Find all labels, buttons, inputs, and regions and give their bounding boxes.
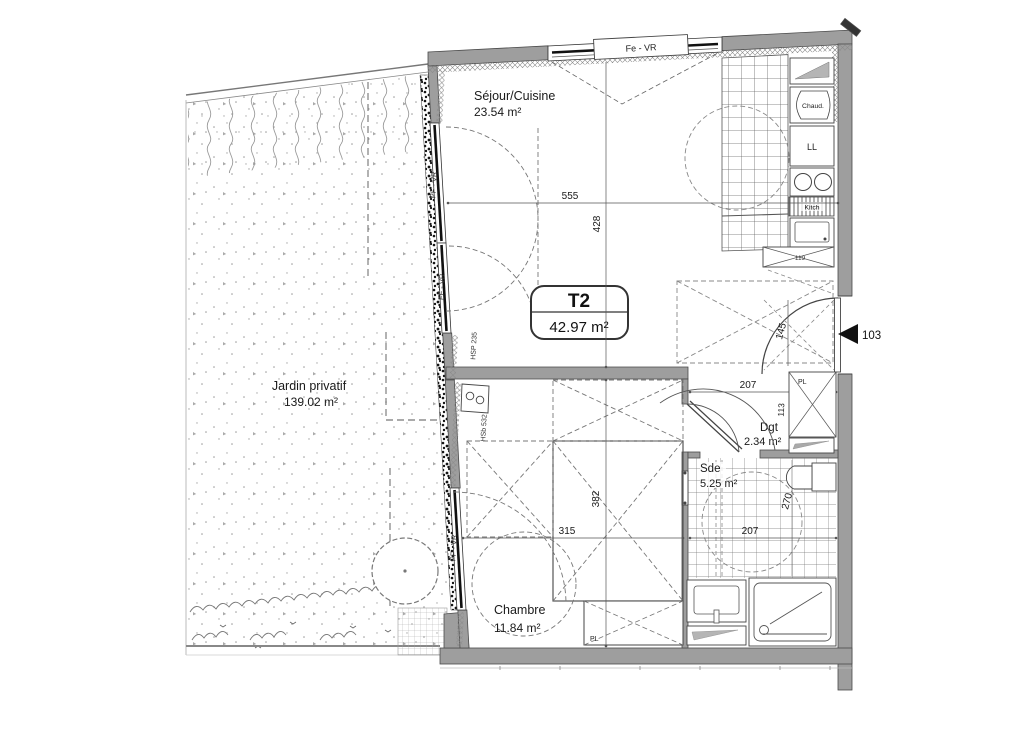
wall-right-upper [838, 44, 852, 296]
dim-428: 428 [592, 215, 603, 232]
floor-plan-drawing: Jardin privatif 139.02 m² [0, 0, 1024, 731]
wall-sde-top-left [688, 452, 700, 458]
dim-dot [605, 366, 608, 369]
garden: Jardin privatif 139.02 m² [186, 64, 460, 655]
sde-sink-tap [714, 610, 719, 623]
kitchen-floor-tiles [722, 55, 788, 251]
window-top-label-box: Fe - VR [594, 35, 689, 60]
dining-area-dashed [677, 281, 833, 363]
shower-drain [760, 626, 769, 635]
garden-area: 139.02 m² [284, 395, 338, 409]
dim-dot [605, 379, 608, 382]
entry-door-leaf [835, 298, 841, 372]
entry-clearance [764, 270, 834, 370]
dgt-area: 2.34 m² [744, 436, 782, 448]
dim-207-entry: 207 [740, 380, 757, 391]
wc-bowl [786, 466, 812, 489]
sejour-cuisine: Chaud. LL Kitch 119 Séjour/Cuisine 23.54… [446, 55, 834, 363]
wc-tank [812, 463, 836, 491]
dim-dot [689, 391, 692, 394]
dim-382: 382 [591, 490, 602, 507]
exterior-bottom-line [440, 666, 852, 670]
dim-dot [837, 202, 840, 205]
wall-sejour-chambre [446, 367, 688, 379]
chambre-radiator [461, 384, 489, 413]
dim-315: 315 [559, 526, 576, 537]
floor-plan-page: Jardin privatif 139.02 m² [0, 0, 1024, 731]
dgt-door-leaf2 [690, 401, 742, 449]
dim-555: 555 [562, 191, 579, 202]
note-hsb: HSb 532 [480, 414, 488, 442]
kitchen-sink-drain [824, 238, 827, 241]
unit-badge: T2 42.97 m² [531, 286, 628, 339]
chambre: PL Chambre 11.84 m² 315 382 [454, 379, 684, 648]
window-chambre-label: PF - VR [448, 534, 458, 562]
window-sejour-upper-label: PF - VR [428, 171, 438, 199]
dim-207-sde: 207 [742, 526, 759, 537]
entry: 103 145 [762, 270, 881, 374]
kitchen-label: Kitch [804, 205, 819, 212]
dim-dot [689, 537, 692, 540]
unit-number: 103 [862, 330, 881, 342]
radiator-valve [684, 472, 687, 475]
window-top-label: Fe - VR [625, 42, 657, 54]
entry-closet-label: PL [798, 379, 807, 386]
dim-145: 145 [774, 321, 789, 340]
note-hsp: HSP 235 [470, 332, 478, 360]
wall-bottom [440, 648, 852, 664]
tree-trunk [403, 569, 406, 572]
wall-right-lower [838, 374, 852, 690]
dim-113: 113 [776, 403, 787, 417]
sde-label: Sde [700, 463, 720, 475]
garden-label: Jardin privatif [272, 379, 347, 393]
unit-area: 42.97 m² [549, 319, 608, 336]
washing-machine-label: LL [807, 142, 817, 152]
hob-burner [795, 174, 812, 191]
unit-type: T2 [568, 291, 590, 312]
hob-burner [815, 174, 832, 191]
bed [553, 441, 683, 601]
chambre-area: 11.84 m² [494, 621, 540, 635]
radiator-valve [684, 502, 687, 505]
bedroom-closet-label: PL [590, 636, 599, 643]
window-sejour-lower-label: FF - VR [436, 273, 446, 300]
salle-eau: Sde 5.25 m² 207 270 [682, 458, 837, 646]
sde-area: 5.25 m² [700, 478, 738, 490]
dim-dot [462, 537, 465, 540]
sejour-door-swings [446, 127, 538, 333]
unit-number-marker [838, 324, 858, 344]
dim-dot [447, 202, 450, 205]
dim-dot [682, 537, 685, 540]
sejour-label: Séjour/Cuisine [474, 89, 555, 103]
dim-dot [835, 537, 838, 540]
boiler-label: Chaud. [802, 103, 824, 110]
sejour-area: 23.54 m² [474, 105, 521, 119]
chambre-label: Chambre [494, 603, 545, 617]
fridge-dim: 119 [795, 255, 806, 262]
dim-dot [605, 645, 608, 648]
